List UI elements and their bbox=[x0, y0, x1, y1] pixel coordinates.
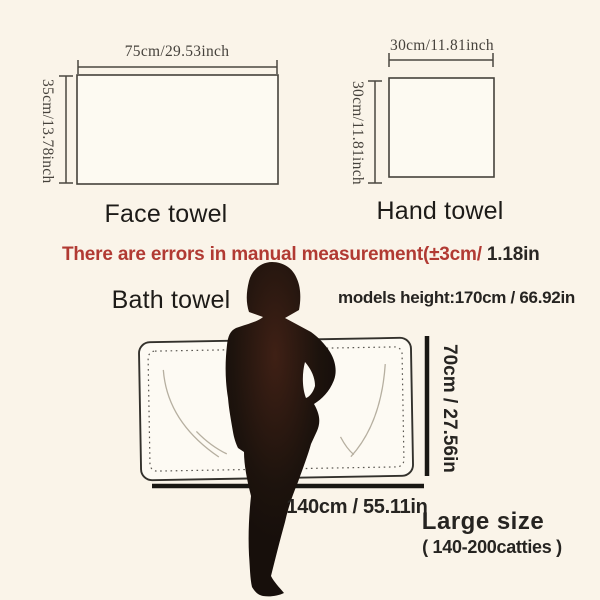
disclaimer-red-text: There are errors in manual measurement(±… bbox=[62, 244, 482, 265]
face-towel-height-label: 35cm/13.78inch bbox=[38, 77, 56, 185]
face-towel-title: Face towel bbox=[105, 200, 228, 229]
size-range: ( 140-200catties ) bbox=[422, 537, 562, 558]
hand-towel-width-measure-line bbox=[389, 53, 493, 67]
hand-towel-title: Hand towel bbox=[376, 197, 503, 226]
face-towel-height-measure-line bbox=[59, 76, 73, 183]
infographic-canvas: 75cm/29.53inch 35cm/13.78inch Face towel… bbox=[0, 0, 600, 600]
hand-towel-height-measure-line bbox=[368, 81, 382, 183]
face-towel-shape bbox=[77, 75, 278, 184]
face-towel-width-measure-line bbox=[78, 60, 277, 74]
hand-towel-height-label: 30cm/11.81inch bbox=[348, 80, 366, 186]
size-title: Large size bbox=[422, 508, 544, 536]
face-towel-width-label: 75cm/29.53inch bbox=[125, 43, 230, 61]
disclaimer-inch-text: 1.18in bbox=[482, 244, 540, 265]
hand-towel-width-label: 30cm/11.81inch bbox=[390, 37, 494, 55]
measurement-disclaimer: There are errors in manual measurement(±… bbox=[62, 244, 540, 266]
bath-towel-width-label: 140cm / 55.11in bbox=[286, 496, 427, 519]
bath-towel-title: Bath towel bbox=[112, 286, 231, 315]
model-height-label: models height:170cm / 66.92in bbox=[338, 288, 575, 308]
bath-towel-height-label: 70cm / 27.56in bbox=[438, 338, 460, 478]
hand-towel-shape bbox=[389, 78, 494, 177]
